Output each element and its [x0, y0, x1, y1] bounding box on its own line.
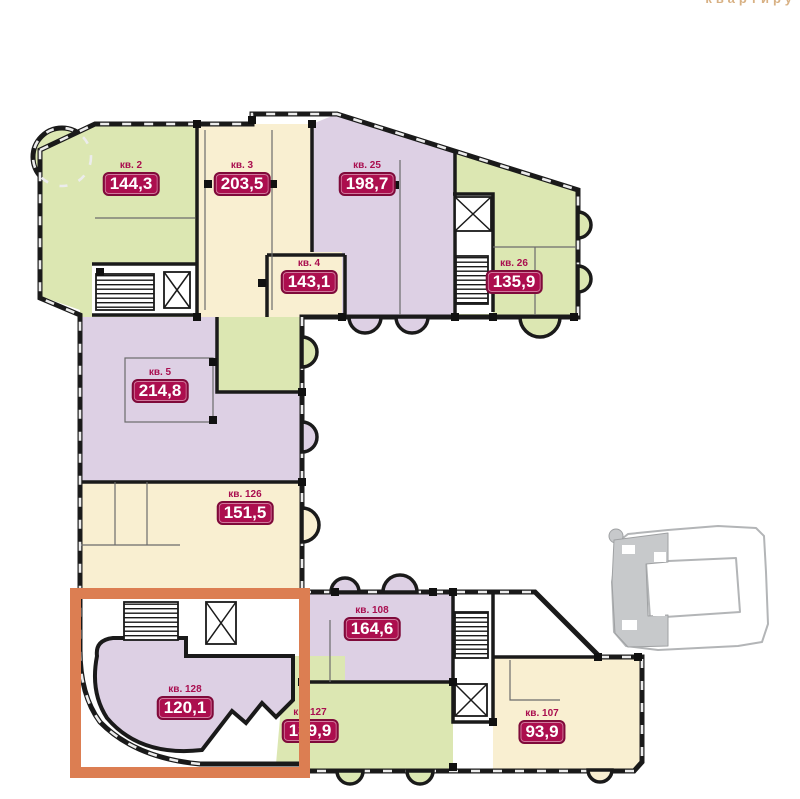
- apartment-number: кв. 5: [132, 367, 189, 378]
- apartment-area-badge: 143,1: [281, 270, 338, 294]
- apartment-area-badge: 198,7: [339, 172, 396, 196]
- apartment-number: кв. 26: [486, 258, 543, 269]
- apartment-kv-25[interactable]: кв. 25 198,7: [339, 160, 396, 196]
- apartment-area-badge: 214,8: [132, 379, 189, 403]
- floorplan-page: квартиру: [0, 0, 800, 799]
- apartment-kv-126[interactable]: кв. 126 151,5: [217, 489, 274, 525]
- apartment-area-badge: 135,9: [486, 270, 543, 294]
- apartment-area-badge: 164,6: [344, 617, 401, 641]
- apartment-number: кв. 107: [518, 708, 565, 719]
- apartment-number: кв. 3: [214, 160, 271, 171]
- apartment-area-badge: 151,5: [217, 501, 274, 525]
- apartment-kv-5[interactable]: кв. 5 214,8: [132, 367, 189, 403]
- apartment-kv-4[interactable]: кв. 4 143,1: [281, 258, 338, 294]
- apartment-number: кв. 126: [217, 489, 274, 500]
- minimap-current-section[interactable]: [612, 533, 668, 647]
- selected-apartment-highlight: [70, 588, 310, 778]
- apartment-area-badge: 203,5: [214, 172, 271, 196]
- apartment-number: кв. 25: [339, 160, 396, 171]
- apartment-kv-3[interactable]: кв. 3 203,5: [214, 160, 271, 196]
- apartment-kv-2[interactable]: кв. 2 144,3: [103, 160, 160, 196]
- apartment-area-badge: 144,3: [103, 172, 160, 196]
- apartment-number: кв. 4: [281, 258, 338, 269]
- apartment-kv-108[interactable]: кв. 108 164,6: [344, 605, 401, 641]
- apartment-kv-107[interactable]: кв. 107 93,9: [518, 708, 565, 744]
- apartment-kv-26[interactable]: кв. 26 135,9: [486, 258, 543, 294]
- apartment-number: кв. 2: [103, 160, 160, 171]
- building-locator-minimap[interactable]: [609, 526, 768, 650]
- apartment-area-badge: 93,9: [518, 720, 565, 744]
- apartment-number: кв. 108: [344, 605, 401, 616]
